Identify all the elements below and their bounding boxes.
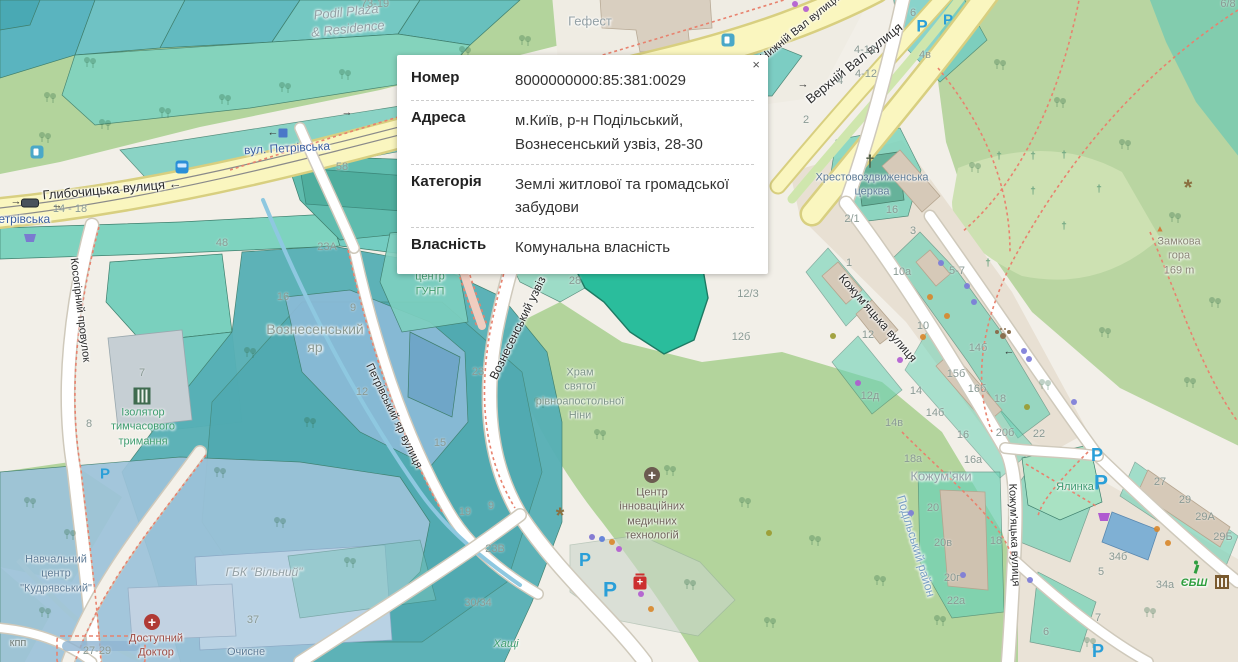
- field-label: Категорія: [411, 173, 511, 220]
- field-value: Комунальна власність: [515, 236, 754, 259]
- field-value: Землі житлової та громадської забудови: [515, 173, 754, 220]
- map-app: Глибочицька вулиця ←вул. ПетрівськаПетрі…: [0, 0, 1238, 662]
- field-value: 8000000000:85:381:0029: [515, 69, 754, 92]
- popup-row-ownership: Власність Комунальна власність: [411, 228, 754, 261]
- field-label: Власність: [411, 236, 511, 259]
- close-icon[interactable]: ×: [752, 58, 760, 71]
- parcel-info-popup: × Номер 8000000000:85:381:0029 Адреса м.…: [397, 55, 768, 274]
- popup-row-category: Категорія Землі житлової та громадської …: [411, 165, 754, 229]
- field-label: Адреса: [411, 109, 511, 156]
- field-value: м.Київ, р-н Подільський, Вознесенський у…: [515, 109, 754, 156]
- field-label: Номер: [411, 69, 511, 92]
- popup-row-number: Номер 8000000000:85:381:0029: [411, 61, 754, 101]
- popup-row-address: Адреса м.Київ, р-н Подільський, Вознесен…: [411, 101, 754, 165]
